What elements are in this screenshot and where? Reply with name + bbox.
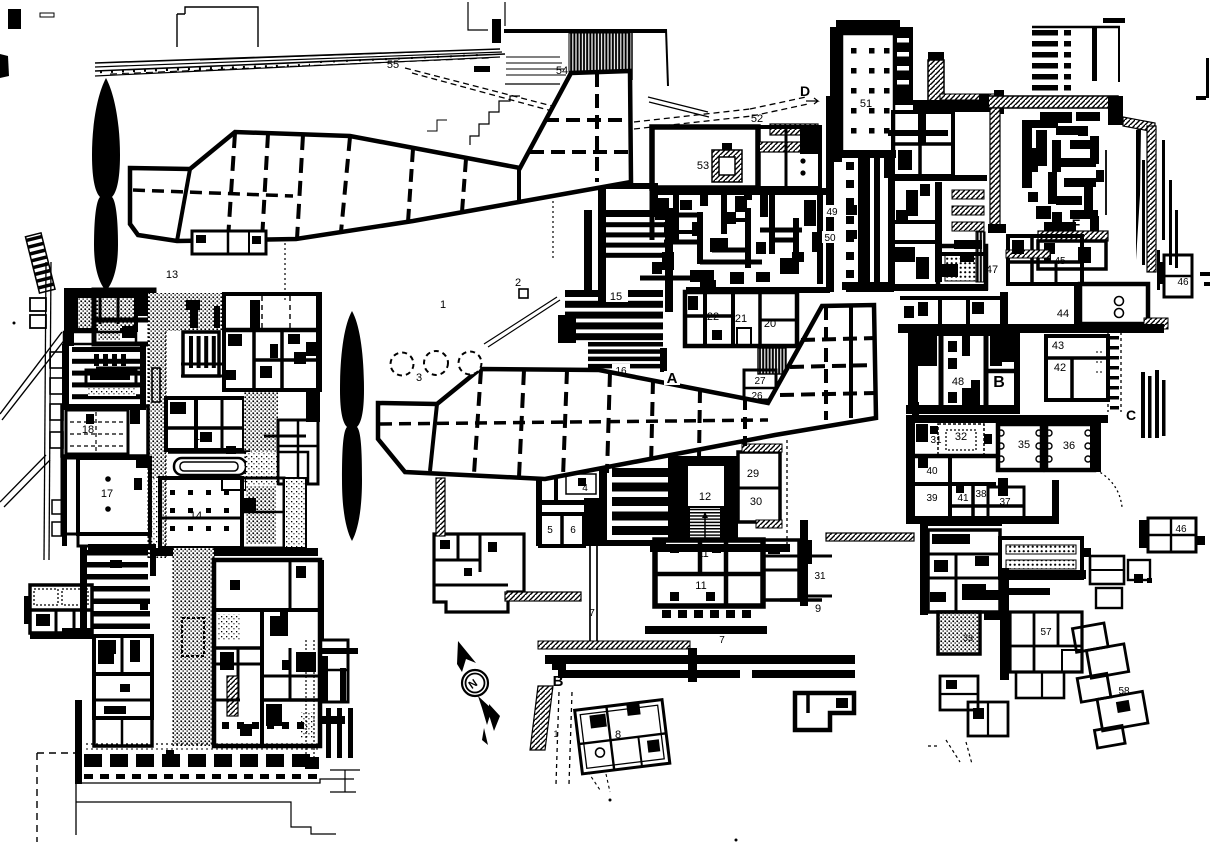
svg-text:36: 36 bbox=[1063, 440, 1075, 452]
svg-text:11: 11 bbox=[697, 548, 708, 560]
svg-text:39: 39 bbox=[926, 493, 938, 504]
svg-text:50: 50 bbox=[824, 233, 836, 244]
svg-text:40: 40 bbox=[926, 466, 938, 477]
svg-text:13: 13 bbox=[166, 269, 178, 281]
svg-text:47: 47 bbox=[986, 264, 998, 276]
svg-text:8: 8 bbox=[615, 729, 621, 741]
svg-text:37: 37 bbox=[999, 497, 1011, 508]
svg-text:20: 20 bbox=[764, 318, 776, 330]
svg-text:7: 7 bbox=[719, 635, 725, 646]
svg-text:17: 17 bbox=[101, 488, 113, 500]
svg-text:1: 1 bbox=[440, 299, 446, 311]
svg-text:3: 3 bbox=[416, 372, 422, 384]
svg-text:15: 15 bbox=[610, 291, 622, 303]
svg-text:2: 2 bbox=[515, 277, 521, 289]
svg-text:4: 4 bbox=[582, 483, 588, 494]
svg-text:6: 6 bbox=[570, 525, 576, 536]
svg-text:A: A bbox=[667, 370, 678, 387]
svg-text:11: 11 bbox=[695, 580, 706, 592]
svg-text:5: 5 bbox=[547, 525, 553, 536]
svg-text:31: 31 bbox=[930, 435, 942, 446]
svg-text:27: 27 bbox=[754, 376, 766, 387]
svg-text:35: 35 bbox=[1018, 439, 1030, 451]
svg-text:12: 12 bbox=[699, 491, 711, 503]
svg-text:B: B bbox=[993, 374, 1005, 391]
svg-text:14: 14 bbox=[190, 510, 202, 522]
svg-text:B: B bbox=[553, 673, 564, 690]
svg-text:D: D bbox=[800, 83, 810, 99]
svg-text:46: 46 bbox=[1177, 277, 1189, 288]
svg-text:49: 49 bbox=[826, 207, 838, 218]
svg-text:F: F bbox=[1072, 216, 1081, 232]
svg-text:38: 38 bbox=[975, 489, 987, 500]
svg-text:C: C bbox=[1126, 407, 1136, 423]
svg-text:1: 1 bbox=[553, 729, 558, 739]
svg-text:52: 52 bbox=[751, 113, 763, 125]
svg-text:42: 42 bbox=[1054, 362, 1066, 374]
svg-text:22: 22 bbox=[707, 311, 719, 323]
svg-text:7: 7 bbox=[589, 608, 595, 619]
svg-text:32: 32 bbox=[955, 431, 967, 443]
svg-text:43: 43 bbox=[1052, 340, 1064, 352]
svg-text:21: 21 bbox=[735, 313, 747, 325]
svg-text:19: 19 bbox=[194, 431, 206, 443]
svg-text:57: 57 bbox=[1040, 627, 1052, 638]
svg-text:41: 41 bbox=[957, 493, 969, 504]
svg-text:31: 31 bbox=[814, 571, 826, 582]
svg-text:58: 58 bbox=[1118, 686, 1130, 697]
svg-text:48: 48 bbox=[952, 376, 964, 388]
svg-text:44: 44 bbox=[1057, 308, 1069, 320]
svg-text:9: 9 bbox=[815, 603, 821, 615]
svg-text:53: 53 bbox=[697, 160, 709, 172]
svg-text:30: 30 bbox=[750, 496, 762, 508]
svg-text:55: 55 bbox=[387, 59, 399, 71]
svg-text:29: 29 bbox=[747, 468, 759, 480]
svg-text:46: 46 bbox=[1175, 524, 1187, 535]
svg-text:51: 51 bbox=[860, 98, 872, 110]
svg-text:33: 33 bbox=[963, 633, 973, 643]
svg-text:18: 18 bbox=[82, 424, 94, 436]
